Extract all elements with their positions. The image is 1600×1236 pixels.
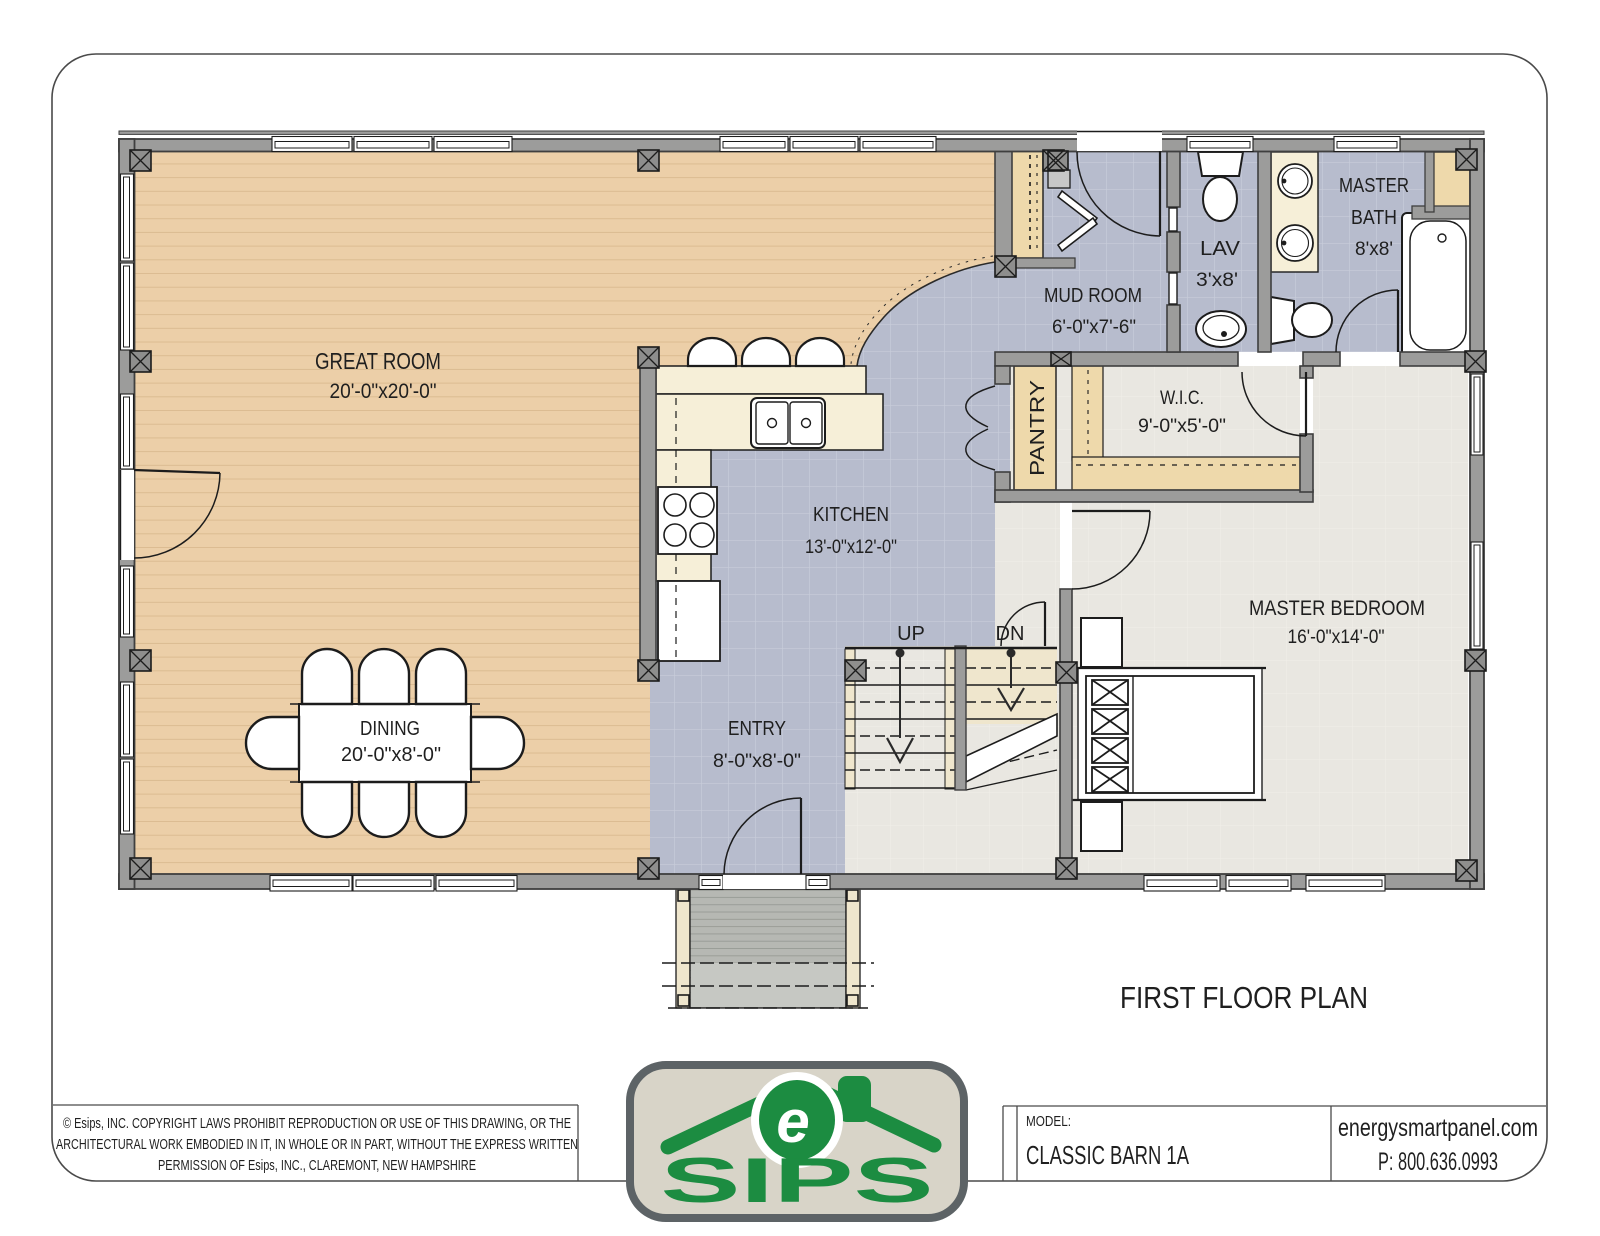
svg-text:UP: UP [897, 623, 925, 645]
svg-text:PANTRY: PANTRY [1027, 380, 1049, 476]
svg-text:BATH: BATH [1351, 207, 1397, 229]
svg-text:GREAT ROOM: GREAT ROOM [315, 348, 441, 374]
svg-text:ARCHITECTURAL WORK EMBODIED IN: ARCHITECTURAL WORK EMBODIED IN IT, IN WH… [56, 1136, 578, 1153]
svg-text:© Esips, INC. COPYRIGHT LAWS P: © Esips, INC. COPYRIGHT LAWS PROHIBIT RE… [63, 1115, 571, 1132]
svg-text:MASTER BEDROOM: MASTER BEDROOM [1249, 597, 1425, 620]
svg-text:20'-0"x8'-0": 20'-0"x8'-0" [341, 744, 441, 766]
svg-text:8'-0"x8'-0": 8'-0"x8'-0" [713, 751, 801, 772]
svg-text:P: 800.636.0993: P: 800.636.0993 [1378, 1148, 1498, 1176]
svg-text:FIRST FLOOR PLAN: FIRST FLOOR PLAN [1120, 980, 1368, 1015]
svg-text:PERMISSION OF Esips, INC., CLA: PERMISSION OF Esips, INC., CLAREMONT, NE… [158, 1157, 476, 1174]
svg-text:3'x8': 3'x8' [1196, 270, 1238, 291]
svg-text:16'-0"x14'-0": 16'-0"x14'-0" [1288, 627, 1385, 648]
svg-text:ENTRY: ENTRY [728, 718, 786, 740]
svg-text:MUD ROOM: MUD ROOM [1044, 285, 1142, 307]
svg-text:W.I.C.: W.I.C. [1160, 388, 1204, 409]
svg-text:SIPS: SIPS [661, 1146, 934, 1216]
svg-text:20'-0"x20'-0": 20'-0"x20'-0" [330, 380, 437, 403]
svg-text:DINING: DINING [360, 718, 420, 740]
svg-text:e: e [776, 1088, 809, 1155]
svg-text:6'-0"x7'-6": 6'-0"x7'-6" [1052, 317, 1136, 338]
svg-text:8'x8': 8'x8' [1355, 239, 1393, 260]
svg-text:13'-0"x12'-0": 13'-0"x12'-0" [805, 537, 897, 558]
svg-text:MASTER: MASTER [1339, 175, 1409, 197]
svg-text:9'-0"x5'-0": 9'-0"x5'-0" [1138, 416, 1226, 437]
svg-text:DN: DN [996, 623, 1025, 645]
svg-text:LAV: LAV [1200, 238, 1241, 260]
svg-text:energysmartpanel.com: energysmartpanel.com [1338, 1114, 1538, 1142]
svg-text:MODEL:: MODEL: [1026, 1113, 1071, 1130]
svg-text:KITCHEN: KITCHEN [813, 504, 889, 526]
svg-text:CLASSIC BARN 1A: CLASSIC BARN 1A [1026, 1140, 1189, 1170]
